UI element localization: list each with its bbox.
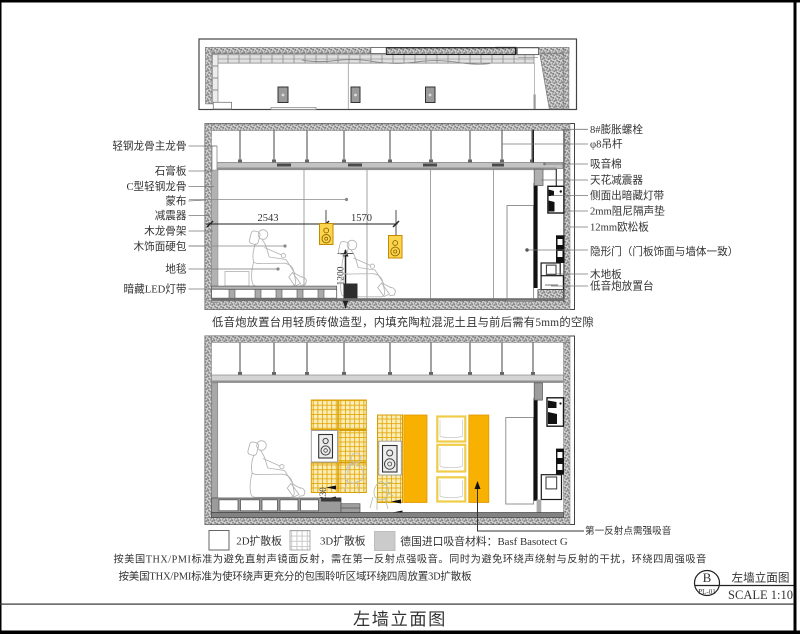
svg-text:2543: 2543	[258, 213, 279, 224]
svg-text:按美国THX/PMI标准为避免直射声镜面反射，需在第一反射点: 按美国THX/PMI标准为避免直射声镜面反射，需在第一反射点强吸音。同时为避免环…	[114, 553, 707, 566]
svg-text:左墙立面图: 左墙立面图	[353, 610, 447, 629]
svg-text:3D扩散板: 3D扩散板	[320, 534, 366, 548]
svg-text:按美国THX/PMI标准为使环绕声更充分的包围聆听区域环绕四: 按美国THX/PMI标准为使环绕声更充分的包围聆听区域环绕四周放置3D扩散板	[119, 570, 473, 583]
svg-text:隐形门（门板饰面与墙体一致）: 隐形门（门板饰面与墙体一致）	[590, 245, 738, 258]
svg-text:左墙立面图: 左墙立面图	[732, 571, 790, 585]
svg-text:低音炮放置台: 低音炮放置台	[590, 280, 654, 293]
svg-text:减震器: 减震器	[155, 210, 187, 222]
svg-text:2mm阻尼隔声垫: 2mm阻尼隔声垫	[590, 205, 665, 218]
svg-text:蒙布: 蒙布	[165, 195, 186, 208]
svg-text:吸音棉: 吸音棉	[590, 158, 622, 171]
svg-text:低音炮放置台用轻质砖做造型，内填充陶粒混泥土且与前后需有5m: 低音炮放置台用轻质砖做造型，内填充陶粒混泥土且与前后需有5mm的空隙	[212, 315, 594, 329]
svg-text:天花减震器: 天花减震器	[590, 174, 643, 187]
svg-text:德国进口吸音材料：Basf Basotect G: 德国进口吸音材料：Basf Basotect G	[400, 534, 568, 548]
svg-text:2D扩散板: 2D扩散板	[236, 534, 282, 548]
svg-text:8#膨胀螺栓: 8#膨胀螺栓	[590, 123, 643, 136]
svg-text:PL-01: PL-01	[698, 588, 716, 596]
svg-text:φ8吊杆: φ8吊杆	[590, 138, 623, 151]
svg-text:C型轻钢龙骨: C型轻钢龙骨	[126, 180, 186, 193]
svg-text:1570: 1570	[351, 213, 372, 224]
svg-text:木地板: 木地板	[590, 268, 622, 281]
svg-text:侧面出暗藏灯带: 侧面出暗藏灯带	[590, 189, 665, 202]
svg-text:SCALE 1:10: SCALE 1:10	[728, 588, 793, 602]
svg-text:暗藏LED灯带: 暗藏LED灯带	[124, 283, 187, 296]
svg-text:石膏板: 石膏板	[155, 165, 187, 178]
svg-text:木龙骨架: 木龙骨架	[144, 225, 187, 238]
svg-text:木饰面硬包: 木饰面硬包	[134, 240, 187, 253]
svg-text:12mm欧松板: 12mm欧松板	[590, 221, 649, 234]
svg-text:轻钢龙骨主龙骨: 轻钢龙骨主龙骨	[112, 140, 186, 153]
svg-text:第一反射点需强吸音: 第一反射点需强吸音	[585, 525, 672, 537]
svg-text:地毯: 地毯	[165, 263, 187, 276]
svg-text:B: B	[703, 570, 712, 585]
